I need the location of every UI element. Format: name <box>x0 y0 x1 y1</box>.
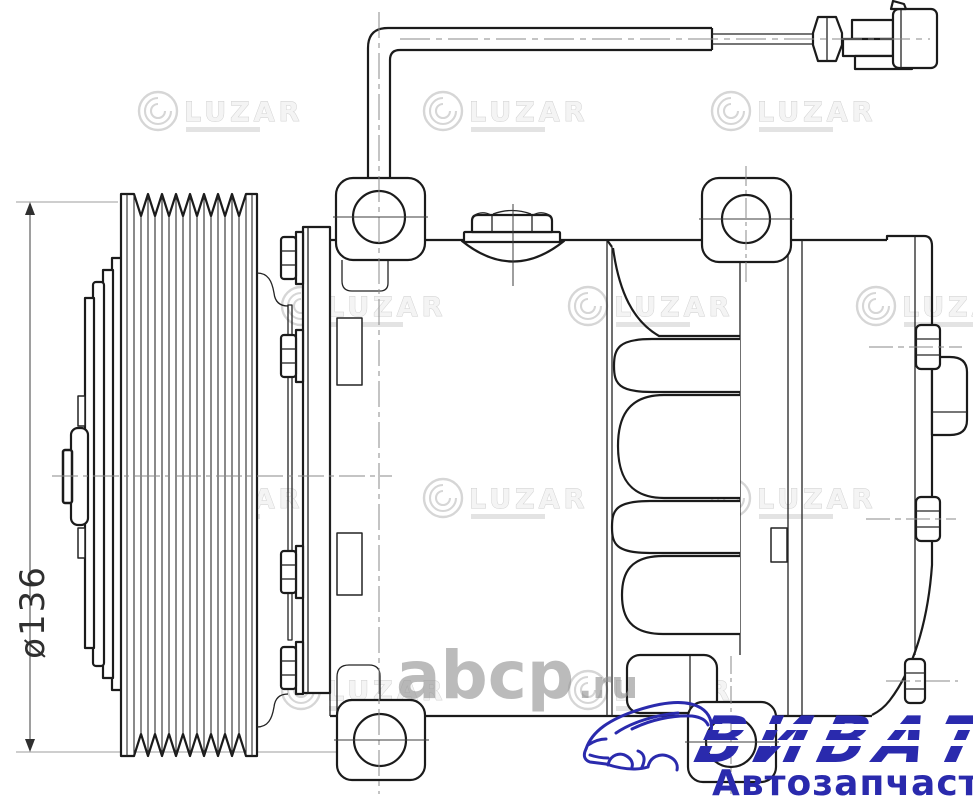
luzar-watermark: LUZAR <box>569 287 733 327</box>
dimension-label: ø136 <box>13 565 53 659</box>
luzar-watermark-tagline-bar <box>186 127 260 132</box>
abcp-watermark-text: abcp <box>396 637 574 714</box>
luzar-watermark-tagline-bar <box>616 322 690 327</box>
front-bracket <box>257 227 330 727</box>
watermark-layer: LUZAR LUZAR LUZAR LUZAR LUZAR LUZAR LUZA… <box>139 92 973 711</box>
dimension-arrow-up <box>25 202 35 215</box>
body-side-tab <box>771 528 787 562</box>
luzar-watermark: LUZAR <box>424 479 588 519</box>
bracket-bolt <box>281 232 303 284</box>
brand-tagline: Автозапчасти <box>712 763 973 800</box>
luzar-watermark-text: LUZAR <box>469 97 588 128</box>
casting-lobe <box>618 395 740 498</box>
dimension-arrow-down <box>25 739 35 752</box>
hub-tab <box>78 528 85 558</box>
connector-step <box>843 39 893 56</box>
luzar-watermark-tagline-bar <box>471 127 545 132</box>
bracket-bolt <box>281 642 303 694</box>
pulley <box>121 194 257 756</box>
luzar-watermark-text: LUZAR <box>757 97 876 128</box>
connector-latch-tab <box>891 1 906 9</box>
luzar-watermark: LUZAR <box>139 92 303 132</box>
bracket-bolt <box>281 330 303 382</box>
body-boss-block <box>337 533 362 595</box>
bracket-plate <box>303 227 330 693</box>
sensor-tube-assembly <box>368 1 937 178</box>
technical-drawing-page: LUZAR LUZAR LUZAR LUZAR LUZAR LUZAR LUZA… <box>0 0 973 800</box>
luzar-watermark-text: LUZAR <box>469 484 588 515</box>
luzar-watermark: LUZAR <box>424 92 588 132</box>
casting-lobe <box>622 556 740 634</box>
body-boss-block <box>337 318 362 385</box>
casting-lobe <box>614 339 740 392</box>
body-top-step <box>887 236 915 240</box>
luzar-watermark-tagline-bar <box>759 127 833 132</box>
luzar-watermark-tagline-bar <box>759 514 833 519</box>
bracket-bolt <box>281 546 303 598</box>
casting-lobe <box>612 501 740 553</box>
compressor-drawing-canvas: LUZAR LUZAR LUZAR LUZAR LUZAR LUZAR LUZA… <box>0 0 973 800</box>
abcp-watermark-tld: .ru <box>578 663 638 707</box>
nut-flange <box>464 232 560 242</box>
hex-nut <box>472 215 552 232</box>
abcp-watermark: abcp .ru <box>396 637 638 714</box>
luzar-watermark-text: LUZAR <box>184 97 303 128</box>
hub-tab <box>78 396 85 426</box>
luzar-watermark-text: LUZAR <box>902 292 973 323</box>
connector-step <box>852 20 893 39</box>
luzar-watermark-text: LUZAR <box>757 484 876 515</box>
ear-base-step <box>342 260 388 291</box>
luzar-watermark-tagline-bar <box>471 514 545 519</box>
vendor-logo: ВИВАТ Автозапчасти <box>584 703 973 800</box>
clutch-hub <box>63 258 122 690</box>
luzar-watermark: LUZAR <box>712 92 876 132</box>
